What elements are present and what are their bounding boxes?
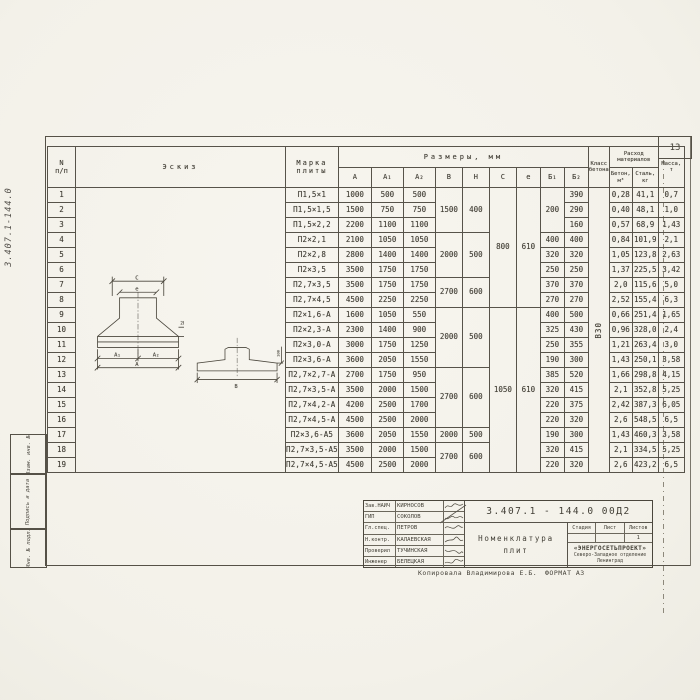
cell-a1: 2000	[371, 383, 403, 398]
cell-a1: 750	[371, 203, 403, 218]
cell-steel: 101,9	[632, 233, 658, 248]
signer-role: Н.контр.	[364, 535, 396, 545]
cell-a1: 2050	[371, 353, 403, 368]
cell-steel: 48,1	[632, 203, 658, 218]
cell-b: 2700	[435, 278, 462, 308]
signer-name: Калаевская	[396, 535, 444, 545]
cell-b2: 430	[564, 323, 588, 338]
header-sketch: Эскиз	[76, 147, 286, 188]
signer-role: Проверил	[364, 546, 396, 556]
cell-b2: 375	[564, 398, 588, 413]
dim-label-a1: А₁	[114, 353, 121, 359]
header-steel: Сталь, кг	[632, 168, 658, 188]
cell-b1: 250	[540, 338, 564, 353]
row-number: 1	[48, 188, 76, 203]
dim-label-c: С	[135, 275, 138, 281]
cell-steel: 68,9	[632, 218, 658, 233]
signer-role: Зав.НАИЧ	[364, 501, 396, 511]
cell-b1: 400	[540, 308, 564, 323]
title-block: Зав.НАИЧ Кирносов ГИП Соколов Гл.спец. П…	[363, 500, 653, 568]
cell-concrete: 2,42	[609, 398, 632, 413]
cell-mark: П2,7×3,5-А5	[286, 443, 339, 458]
cell-a: 4200	[338, 398, 371, 413]
table-row: 1	[48, 188, 685, 203]
cell-mass: 5,25	[658, 383, 684, 398]
cell-b2: 370	[564, 278, 588, 293]
frame-right-line	[690, 136, 691, 566]
cell-steel: 225,5	[632, 263, 658, 278]
cell-a2: 1500	[403, 383, 435, 398]
row-number: 9	[48, 308, 76, 323]
cell-a2: 1550	[403, 428, 435, 443]
stamp-vzam-inv: Взам. инв. №	[10, 434, 47, 475]
cell-steel: 250,1	[632, 353, 658, 368]
cell-a: 1500	[338, 203, 371, 218]
cell-a: 3600	[338, 428, 371, 443]
cell-concrete: 2,6	[609, 458, 632, 473]
dim-label-b: В	[235, 384, 238, 390]
cell-a2: 1550	[403, 353, 435, 368]
cell-mass: 1,43	[658, 218, 684, 233]
cell-concrete: 2,6	[609, 413, 632, 428]
cell-mass: 3,58	[658, 353, 684, 368]
header-dim-a2: А₂	[403, 168, 435, 188]
cell-b1: 400	[540, 233, 564, 248]
cell-mark: П2×2,8	[286, 248, 339, 263]
cell-mark: П2×3,0-А	[286, 338, 339, 353]
cell-a2: 1100	[403, 218, 435, 233]
sheet-label: Лист	[596, 523, 624, 533]
signer-row: ГИП Соколов	[364, 512, 464, 523]
cell-a2: 1050	[403, 233, 435, 248]
cell-a: 2700	[338, 368, 371, 383]
cell-c: 1050	[489, 308, 516, 473]
signer-row: Гл.спец. Петров	[364, 523, 464, 534]
cell-mark: П2,7×2,7-А	[286, 368, 339, 383]
cell-e: 610	[516, 308, 540, 473]
copy-note: Копировала Владимирова Е.Б.	[418, 569, 537, 577]
cell-a: 2800	[338, 248, 371, 263]
signature-icon	[444, 535, 464, 545]
cell-b2: 520	[564, 368, 588, 383]
stage-value	[568, 534, 596, 542]
cell-a2: 2250	[403, 293, 435, 308]
cell-b1: 190	[540, 428, 564, 443]
margin-doc-number: 3.407.1-144.0	[0, 161, 18, 293]
header-mark: Марка плиты	[286, 147, 339, 188]
cell-b2: 400	[564, 233, 588, 248]
cell-b: 2000	[435, 233, 462, 278]
cell-steel: 251,4	[632, 308, 658, 323]
sketch-side-view: В 100	[192, 320, 284, 394]
signer-name: Соколов	[396, 512, 444, 522]
cell-c: 800	[489, 188, 516, 308]
cell-a2: 2000	[403, 413, 435, 428]
sheets-label: Листов	[625, 523, 652, 533]
cell-concrete: 1,66	[609, 368, 632, 383]
dim-label-100: 100	[276, 349, 281, 357]
cell-b: 2000	[435, 428, 462, 443]
row-number: 18	[48, 443, 76, 458]
cell-b2: 300	[564, 353, 588, 368]
row-number: 12	[48, 353, 76, 368]
signature-icon	[444, 501, 464, 511]
cell-b1: 320	[540, 443, 564, 458]
cell-b2: 290	[564, 203, 588, 218]
sheets-value: 1	[625, 534, 652, 542]
cell-a: 1000	[338, 188, 371, 203]
sketch-front-view: С е 20 А₁ А₂ А	[92, 272, 184, 376]
cell-steel: 334,5	[632, 443, 658, 458]
cell-h: 600	[462, 443, 489, 473]
header-mass: Масса, т	[658, 147, 684, 188]
cell-b2: 320	[564, 458, 588, 473]
cell-b1: 250	[540, 263, 564, 278]
cell-a: 3500	[338, 278, 371, 293]
org-name: «ЭНЕРГОСЕТЬПРОЕКТ»	[574, 545, 646, 553]
cell-mass: 6,5	[658, 413, 684, 428]
cell-h: 500	[462, 308, 489, 368]
cell-a2: 1400	[403, 248, 435, 263]
cell-concrete: 0,66	[609, 308, 632, 323]
cell-steel: 115,6	[632, 278, 658, 293]
cell-b: 2000	[435, 308, 462, 368]
cell-b2: 320	[564, 413, 588, 428]
cell-b2: 500	[564, 308, 588, 323]
cell-mark: П2,7×3,5	[286, 278, 339, 293]
cell-b: 1500	[435, 188, 462, 233]
cell-h: 600	[462, 278, 489, 308]
cell-mass: 4,15	[658, 368, 684, 383]
cell-mass: 2,63	[658, 248, 684, 263]
cell-mark: П2,7×3,5-А	[286, 383, 339, 398]
cell-b1: 220	[540, 398, 564, 413]
cell-a2: 2000	[403, 458, 435, 473]
signer-role: ГИП	[364, 512, 396, 522]
cell-mass: 6,3	[658, 293, 684, 308]
cell-concrete: 1,43	[609, 353, 632, 368]
cell-b1: 320	[540, 383, 564, 398]
concrete-class-value: В30	[594, 322, 603, 339]
signature-table: Зав.НАИЧ Кирносов ГИП Соколов Гл.спец. П…	[364, 501, 465, 567]
cell-a: 3500	[338, 443, 371, 458]
cell-mass: 5,25	[658, 443, 684, 458]
cell-h: 400	[462, 188, 489, 233]
signature-icon	[444, 546, 464, 556]
cell-b2: 300	[564, 428, 588, 443]
cell-e: 610	[516, 188, 540, 308]
row-number: 8	[48, 293, 76, 308]
cell-steel: 387,3	[632, 398, 658, 413]
cell-concrete: 0,28	[609, 188, 632, 203]
signer-name: Петров	[396, 523, 444, 533]
cell-a: 3000	[338, 338, 371, 353]
cell-mass: 6,5	[658, 458, 684, 473]
cell-steel: 298,8	[632, 368, 658, 383]
cell-concrete-class: В30	[588, 188, 609, 473]
cell-concrete: 0,57	[609, 218, 632, 233]
cell-mark: П1,5×1	[286, 188, 339, 203]
cell-concrete: 0,84	[609, 233, 632, 248]
cell-mass: 3,0	[658, 338, 684, 353]
document-number: 3.407.1 - 144.0 00Д2	[465, 501, 652, 523]
row-number: 4	[48, 233, 76, 248]
cell-concrete: 0,96	[609, 323, 632, 338]
signer-role: Гл.спец.	[364, 523, 396, 533]
cell-steel: 460,3	[632, 428, 658, 443]
cell-b2: 160	[564, 218, 588, 233]
cell-b1: 325	[540, 323, 564, 338]
cell-b2: 355	[564, 338, 588, 353]
cell-concrete: 0,40	[609, 203, 632, 218]
org-city: Ленинград	[597, 559, 623, 565]
cell-a: 2300	[338, 323, 371, 338]
cell-a1: 2050	[371, 428, 403, 443]
cell-h: 600	[462, 368, 489, 428]
document-title: Номенклатура плит	[465, 523, 568, 567]
cell-mark: П2×2,3-А	[286, 323, 339, 338]
cell-mass: 1,65	[658, 308, 684, 323]
signer-row: Инженер Белецкая	[364, 557, 464, 567]
frame-top-line	[45, 136, 691, 137]
header-dim-h: Н	[462, 168, 489, 188]
cell-concrete: 2,1	[609, 383, 632, 398]
row-number: 17	[48, 428, 76, 443]
format-note: ФОРМАТ А3	[545, 569, 585, 577]
row-number: 19	[48, 458, 76, 473]
cell-mass: 3,58	[658, 428, 684, 443]
row-number: 13	[48, 368, 76, 383]
cell-a2: 1700	[403, 398, 435, 413]
header-consumption: Расход материалов	[609, 147, 658, 168]
stamp-podpis-data-label: Подпись и дата	[26, 478, 32, 524]
cell-a1: 2500	[371, 458, 403, 473]
cell-a1: 1400	[371, 248, 403, 263]
cell-mark: П2×1,6-А	[286, 308, 339, 323]
cell-a1: 1750	[371, 338, 403, 353]
drawing-sheet: 13 3.407.1-144.0 Взам. инв. № Подпись и …	[0, 0, 700, 700]
row-number: 11	[48, 338, 76, 353]
cell-concrete: 1,05	[609, 248, 632, 263]
cell-a: 3500	[338, 383, 371, 398]
header-dim-b: В	[435, 168, 462, 188]
signer-name: Белецкая	[396, 557, 444, 567]
cell-a1: 1400	[371, 323, 403, 338]
row-number: 6	[48, 263, 76, 278]
cell-a: 4500	[338, 293, 371, 308]
cell-a1: 2500	[371, 398, 403, 413]
cell-a2: 550	[403, 308, 435, 323]
cell-b1: 270	[540, 293, 564, 308]
cell-concrete: 1,37	[609, 263, 632, 278]
cell-mass: 5,0	[658, 278, 684, 293]
cell-a1: 500	[371, 188, 403, 203]
signer-row: Проверил Тучинская	[364, 546, 464, 557]
cell-b: 2700	[435, 443, 462, 473]
row-number: 14	[48, 383, 76, 398]
cell-mark: П2×2,1	[286, 233, 339, 248]
cell-b1: 385	[540, 368, 564, 383]
dim-label-e: е	[135, 286, 138, 292]
cell-mark: П1,5×1,5	[286, 203, 339, 218]
cell-a2: 1750	[403, 278, 435, 293]
cell-a2: 750	[403, 203, 435, 218]
cell-b2: 415	[564, 383, 588, 398]
cell-b1: 190	[540, 353, 564, 368]
signer-name: Тучинская	[396, 546, 444, 556]
cell-concrete: 2,0	[609, 278, 632, 293]
cell-b: 2700	[435, 368, 462, 428]
cell-a1: 2250	[371, 293, 403, 308]
signer-role: Инженер	[364, 557, 396, 567]
cell-a: 1600	[338, 308, 371, 323]
cell-mark: П2,7×4,5	[286, 293, 339, 308]
cell-a: 4500	[338, 413, 371, 428]
cell-a2: 1750	[403, 263, 435, 278]
dim-label-a2: А₂	[153, 353, 160, 359]
cell-concrete: 2,52	[609, 293, 632, 308]
cell-a1: 2000	[371, 443, 403, 458]
nomenclature-table: N п/п Эскиз Марка плиты Размеры, мм Клас…	[47, 146, 685, 473]
header-concrete-class: Класс бетона	[588, 147, 609, 188]
cell-b1: 220	[540, 413, 564, 428]
signature-icon	[444, 523, 464, 533]
header-dim-b2: Б₂	[564, 168, 588, 188]
row-number: 16	[48, 413, 76, 428]
row-number: 3	[48, 218, 76, 233]
header-dim-e: е	[516, 168, 540, 188]
cell-a1: 1050	[371, 308, 403, 323]
signer-row: Зав.НАИЧ Кирносов	[364, 501, 464, 512]
cell-a2: 1250	[403, 338, 435, 353]
row-number: 2	[48, 203, 76, 218]
cell-steel: 155,4	[632, 293, 658, 308]
cell-b2: 390	[564, 188, 588, 203]
cell-mass: 3,42	[658, 263, 684, 278]
cell-concrete: 1,21	[609, 338, 632, 353]
cell-mark: П2×3,6-А	[286, 353, 339, 368]
signature-icon	[444, 557, 464, 567]
cell-a: 2100	[338, 233, 371, 248]
cell-a: 2200	[338, 218, 371, 233]
cell-a1: 1750	[371, 278, 403, 293]
cell-a: 3500	[338, 263, 371, 278]
cell-a2: 900	[403, 323, 435, 338]
cell-steel: 123,8	[632, 248, 658, 263]
organization: «ЭНЕРГОСЕТЬПРОЕКТ» Северо-Западное отдел…	[568, 543, 652, 567]
signer-name: Кирносов	[396, 501, 444, 511]
dim-label-a: А	[135, 362, 139, 368]
row-number: 15	[48, 398, 76, 413]
cell-mark: П2,7×4,2-А	[286, 398, 339, 413]
cell-a2: 1500	[403, 443, 435, 458]
sheet-value	[596, 534, 624, 542]
cell-b1: 370	[540, 278, 564, 293]
stamp-inv-podl: Инв. № подл.	[10, 528, 47, 568]
cell-a1: 1100	[371, 218, 403, 233]
header-dim-b1: Б₁	[540, 168, 564, 188]
cell-a1: 1750	[371, 263, 403, 278]
cell-steel: 352,8	[632, 383, 658, 398]
cell-mass: 0,7	[658, 188, 684, 203]
stamp-inv-podl-label: Инв. № подл.	[26, 528, 32, 568]
cell-mark: П2,7×4,5-А5	[286, 458, 339, 473]
cell-h: 500	[462, 233, 489, 278]
cell-b2: 270	[564, 293, 588, 308]
cell-mass: 2,4	[658, 323, 684, 338]
header-dim-a1: А₁	[371, 168, 403, 188]
cell-mark: П2×3,6-А5	[286, 428, 339, 443]
cell-a: 3600	[338, 353, 371, 368]
stamp-podpis-data: Подпись и дата	[10, 473, 47, 530]
stamp-vzam-inv-label: Взам. инв. №	[26, 435, 32, 475]
row-number: 5	[48, 248, 76, 263]
header-concrete: Бетон, м³	[609, 168, 632, 188]
cell-mass: 1,0	[658, 203, 684, 218]
header-dim-c: С	[489, 168, 516, 188]
cell-mark: П2×3,5	[286, 263, 339, 278]
cell-b2: 415	[564, 443, 588, 458]
cell-a1: 2500	[371, 413, 403, 428]
signer-row: Н.контр. Калаевская	[364, 535, 464, 546]
cell-mark: П1,5×2,2	[286, 218, 339, 233]
cell-b2: 250	[564, 263, 588, 278]
cell-a1: 1050	[371, 233, 403, 248]
sketch-cell: С е 20 А₁ А₂ А	[76, 188, 286, 473]
signature-icon	[444, 512, 464, 522]
cell-b1: 200	[540, 188, 564, 233]
cell-steel: 328,0	[632, 323, 658, 338]
row-number: 10	[48, 323, 76, 338]
cell-steel: 41,1	[632, 188, 658, 203]
dim-label-20: 20	[180, 320, 184, 325]
cell-concrete: 2,1	[609, 443, 632, 458]
cell-b2: 320	[564, 248, 588, 263]
cell-a: 4500	[338, 458, 371, 473]
cell-a2: 500	[403, 188, 435, 203]
cell-steel: 423,2	[632, 458, 658, 473]
cell-a2: 950	[403, 368, 435, 383]
cell-steel: 548,5	[632, 413, 658, 428]
cell-steel: 263,4	[632, 338, 658, 353]
title-block-right: 3.407.1 - 144.0 00Д2 Номенклатура плит С…	[465, 501, 652, 567]
stage-label: Стадия	[568, 523, 596, 533]
cell-h: 500	[462, 428, 489, 443]
header-dim-a: А	[338, 168, 371, 188]
header-dimensions: Размеры, мм	[338, 147, 588, 168]
cell-a1: 1750	[371, 368, 403, 383]
row-number: 7	[48, 278, 76, 293]
cell-b1: 220	[540, 458, 564, 473]
cell-concrete: 1,43	[609, 428, 632, 443]
cell-mass: 2,1	[658, 233, 684, 248]
cell-mass: 6,05	[658, 398, 684, 413]
cell-b1: 320	[540, 248, 564, 263]
header-row-number: N п/п	[48, 147, 76, 188]
cell-mark: П2,7×4,5-А	[286, 413, 339, 428]
